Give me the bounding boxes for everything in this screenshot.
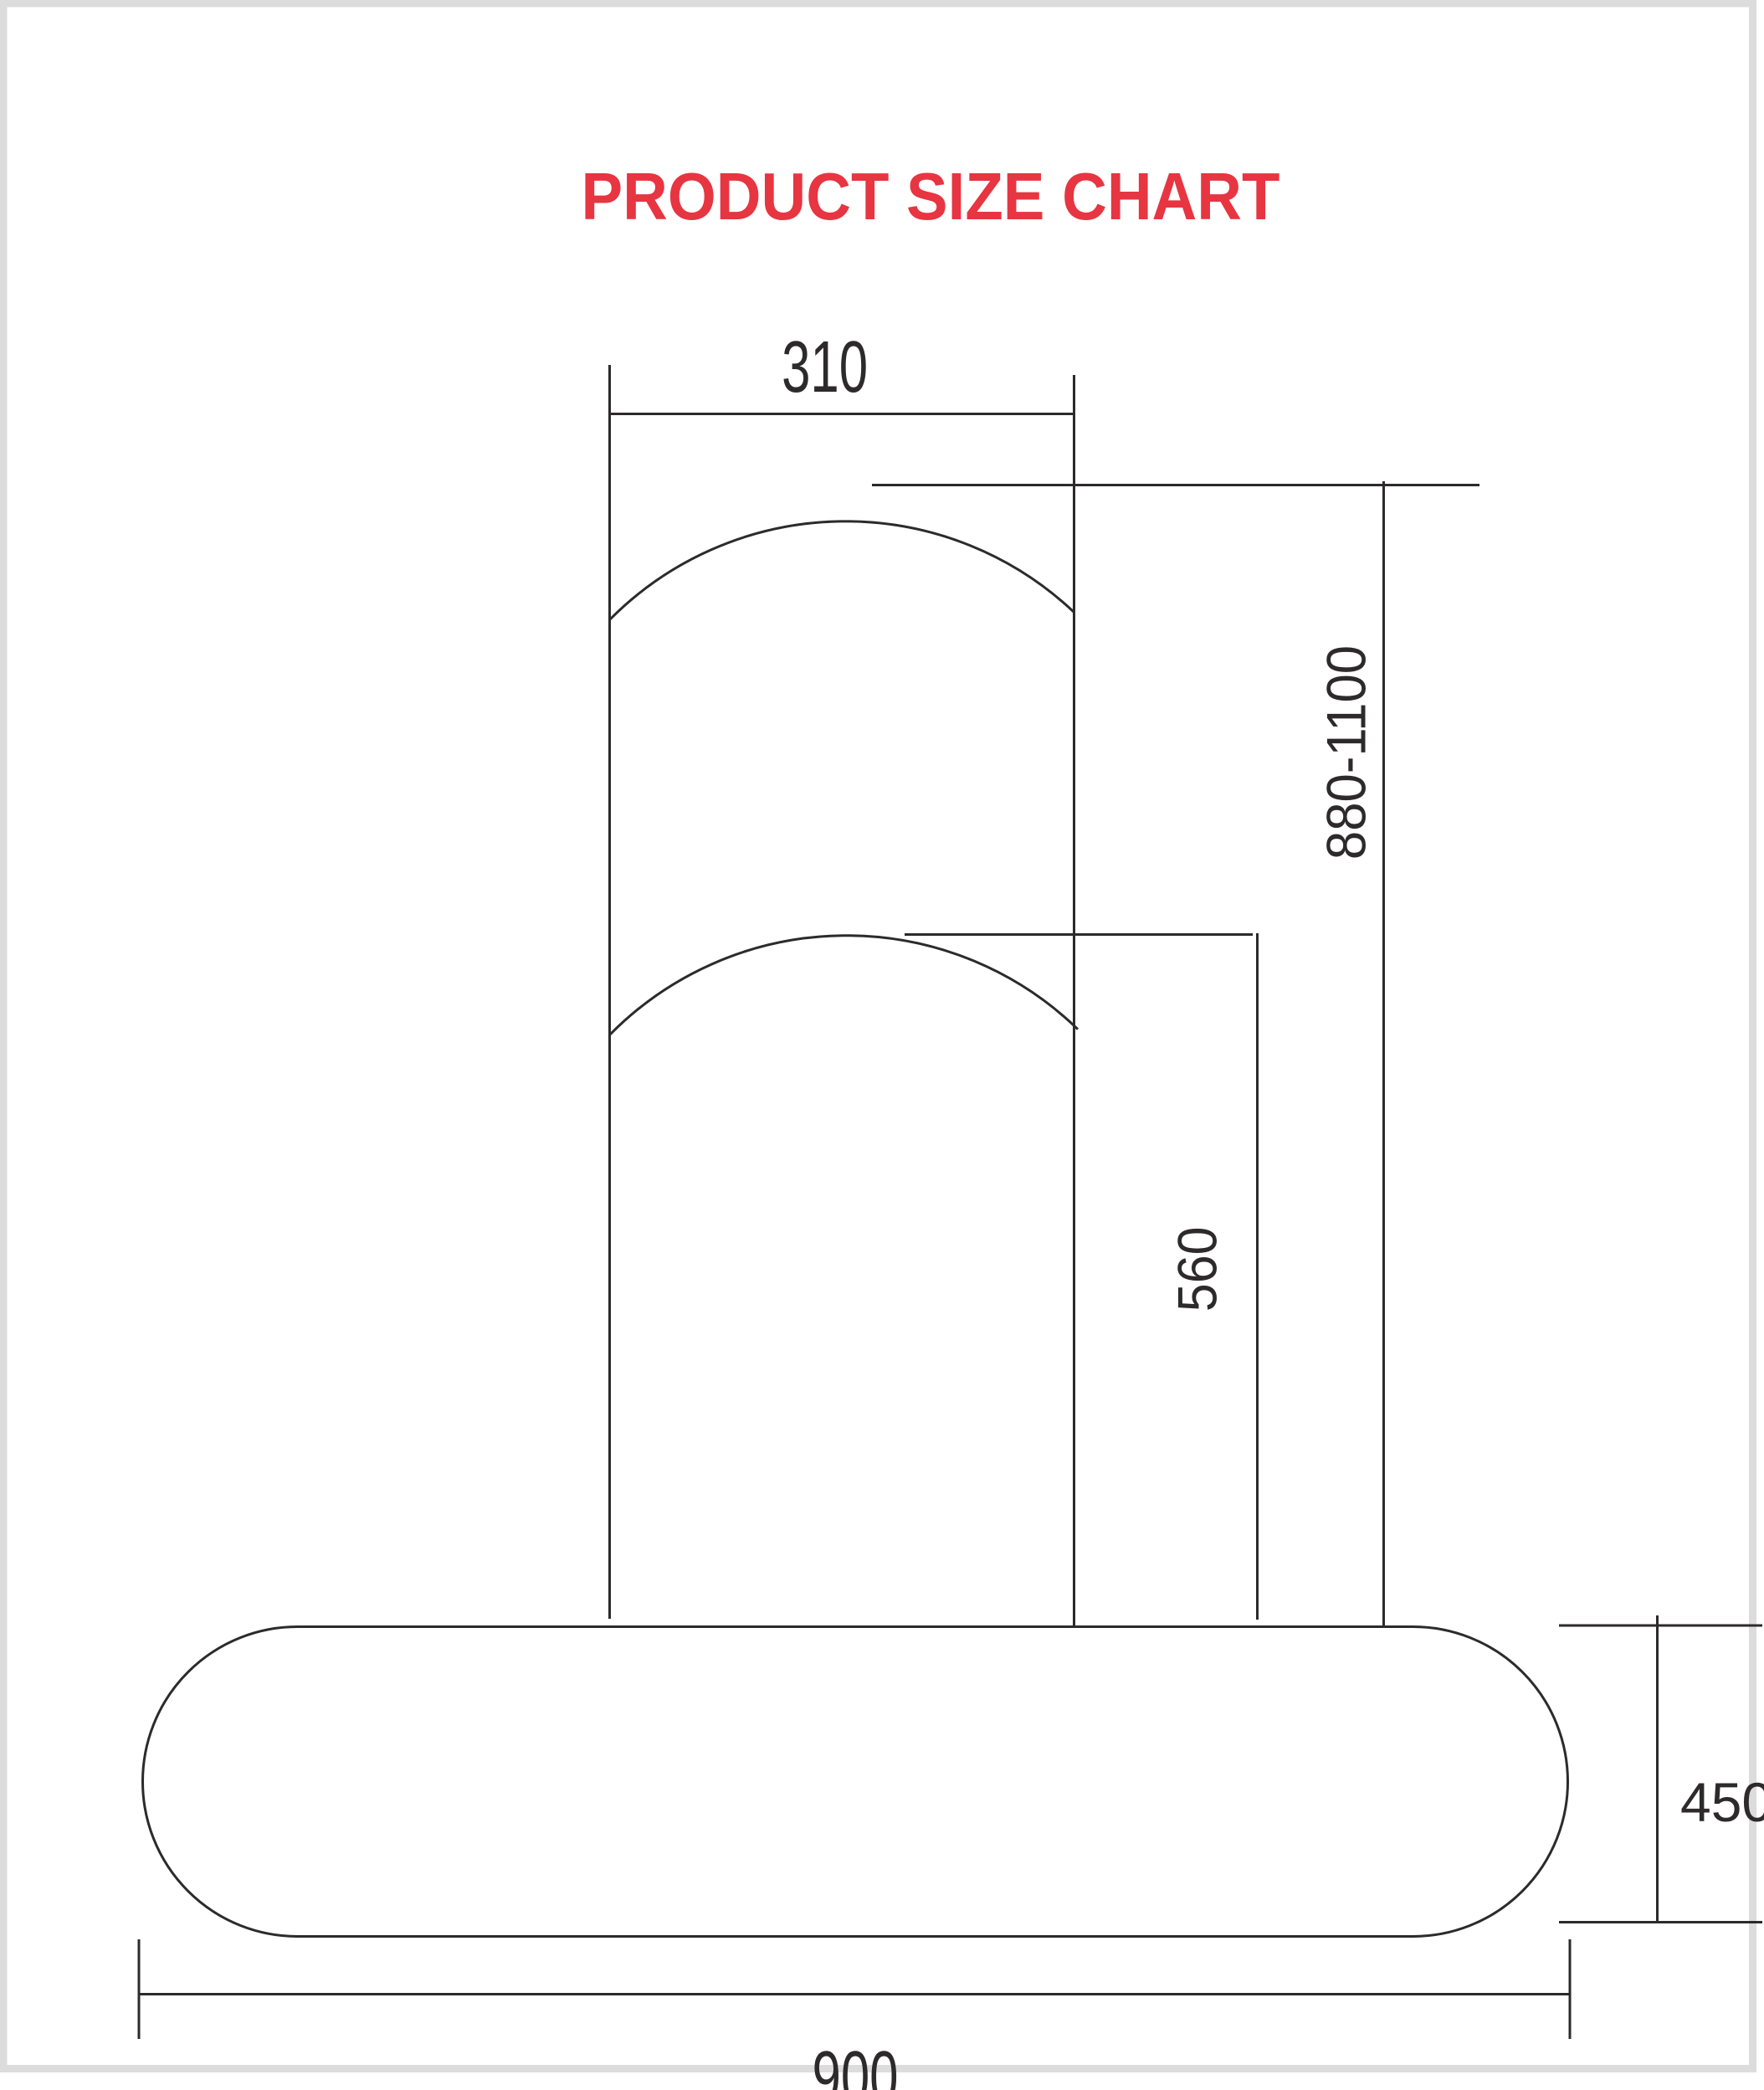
svg-text:450: 450 [1680, 1771, 1764, 1833]
svg-text:PRODUCT SIZE CHART: PRODUCT SIZE CHART [582, 160, 1280, 234]
svg-text:900: 900 [812, 2036, 898, 2090]
svg-text:560: 560 [1167, 1226, 1228, 1312]
svg-text:310: 310 [782, 326, 868, 408]
svg-text:880-1100: 880-1100 [1315, 645, 1377, 860]
